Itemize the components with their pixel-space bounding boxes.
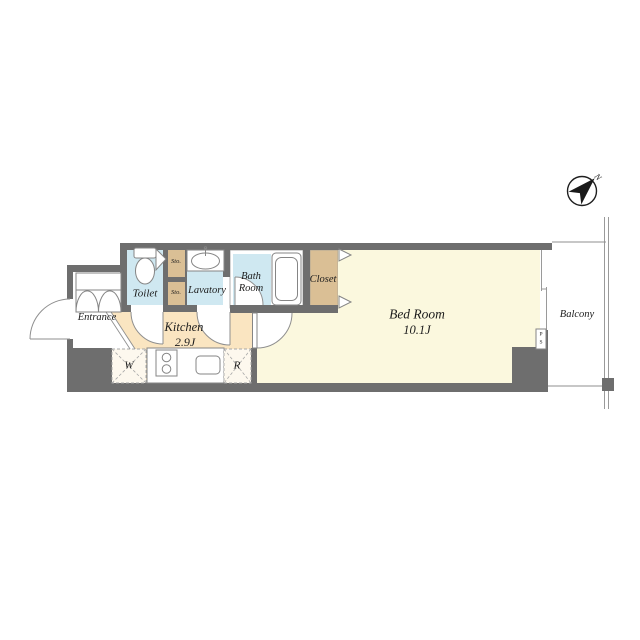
refrigerator-label: R	[234, 361, 241, 372]
bedroom-door-leaf	[253, 313, 258, 348]
washer-label: W	[124, 361, 133, 372]
room-label-bath-line2: Room	[239, 284, 264, 295]
room-label-lavatory: Lavatory	[188, 286, 226, 297]
room-label-storage-upper: Sto.	[171, 259, 181, 266]
wall-sanitary-bottom-2	[163, 305, 197, 312]
area-label-kitchen: 2.9J	[175, 336, 195, 348]
pipe-shaft-label-p: P	[539, 332, 542, 338]
room-label-storage-lower: Sto.	[171, 290, 181, 297]
wall-sanitary-bottom-3	[230, 305, 338, 313]
room-label-entrance: Entrance	[78, 313, 117, 324]
wall-sanitary-bottom-1	[120, 305, 131, 312]
wall-under-entrance	[67, 348, 112, 383]
entrance-door-arc	[30, 299, 70, 339]
wall-storage-divider	[168, 277, 185, 282]
room-label-balcony: Balcony	[560, 310, 594, 321]
room-label-bath-line1: Bath	[241, 272, 261, 283]
room-label-toilet: Toilet	[133, 289, 158, 300]
wall-top	[120, 243, 552, 250]
balcony-window	[540, 250, 548, 330]
room-label-kitchen: Kitchen	[165, 321, 204, 334]
wall-entrance-top	[67, 265, 127, 272]
wall-kitchen-bedroom	[251, 348, 257, 383]
washbasin-icon	[187, 247, 224, 271]
room-label-bedroom: Bed Room	[389, 307, 445, 321]
bathtub-icon	[272, 253, 301, 305]
room-label-closet: Closet	[310, 275, 337, 286]
wall-bottom	[67, 383, 548, 392]
shoe-cabinet-icon	[76, 273, 121, 312]
compass-icon	[568, 177, 597, 206]
floor-plan: Entrance Toilet Sto. Sto. Lavatory Bath …	[0, 0, 640, 640]
kitchen-counter	[147, 348, 224, 383]
balcony-corner-pillar	[602, 378, 614, 391]
area-label-bedroom: 10.1J	[403, 324, 430, 337]
pipe-shaft-label-s: S	[539, 340, 542, 346]
wall-entrance-left-upper	[67, 272, 73, 299]
